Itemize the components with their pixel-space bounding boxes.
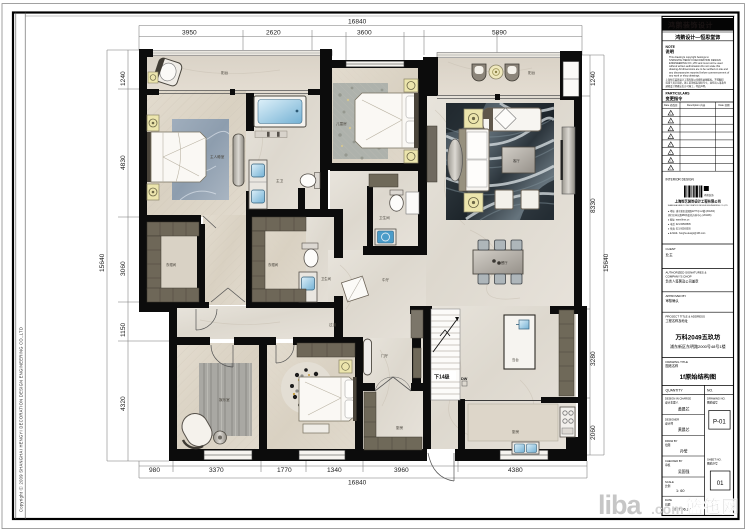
svg-text:娱乐室: 娱乐室 [219,397,230,402]
svg-text:比例: 比例 [665,484,671,488]
svg-text:门厅: 门厅 [381,353,389,358]
svg-text:1240: 1240 [590,71,597,86]
svg-text:4320: 4320 [120,396,127,411]
svg-text:QUANTITY: QUANTITY [666,388,684,392]
svg-text:DW: DW [461,377,468,381]
svg-text:主人睡室: 主人睡室 [210,154,225,159]
svg-text:SHANGHAI HENGYI DECORATION DES: SHANGHAI HENGYI DECORATION DESIGN ENGINE… [668,204,729,207]
svg-text:980: 980 [149,467,160,474]
svg-text:下14级: 下14级 [434,374,450,381]
svg-text:3370: 3370 [209,467,224,474]
svg-text:岛台: 岛台 [512,357,519,362]
svg-text:16840: 16840 [348,19,367,26]
svg-text:3280: 3280 [590,351,597,366]
svg-text:图纸名称: 图纸名称 [666,363,680,368]
svg-text:1770: 1770 [277,467,292,474]
svg-text:负责人签署及公司盖章: 负责人签署及公司盖章 [666,278,700,283]
svg-text:2620: 2620 [266,30,281,37]
svg-text:15640: 15640 [603,253,610,272]
svg-text:1f原始结构图: 1f原始结构图 [680,373,716,381]
svg-text:SCALE: SCALE [665,480,674,484]
svg-text:Copyright Ⓒ 2009 SHANGHAI HE: Copyright Ⓒ 2009 SHANGHAI HENGYI DECORAT… [18,327,24,512]
svg-text:1340: 1340 [327,467,342,474]
svg-text:厨房: 厨房 [512,429,520,434]
svg-text:1240: 1240 [120,71,127,86]
svg-text:any work or shop drawings.: any work or shop drawings. [669,73,700,77]
svg-text:DESIGNER: DESIGNER [665,417,679,421]
svg-text:鸿鹅装饰: 鸿鹅装饰 [704,193,715,197]
svg-text:图纸编号: 图纸编号 [707,401,718,405]
svg-text:15640: 15640 [99,253,106,272]
svg-text:CHECKED BY: CHECKED BY [665,459,683,463]
svg-text:1150: 1150 [120,322,127,337]
svg-text:2060: 2060 [590,425,597,440]
svg-text:审核确认: 审核确认 [666,298,680,303]
svg-text:厨房: 厨房 [396,425,404,430]
svg-text:上海恒艺装饰设计工程有限公司: 上海恒艺装饰设计工程有限公司 [675,198,721,203]
svg-text:DRAWING NO.: DRAWING NO. [707,396,726,400]
svg-text:COMPANY'S CHOP: COMPANY'S CHOP [666,274,692,278]
svg-text:变更指令: 变更指令 [666,95,684,102]
svg-text:卫生间: 卫生间 [321,276,331,281]
svg-text:黄晨芯: 黄晨芯 [678,406,690,411]
svg-text:01: 01 [717,481,724,487]
svg-text:审核: 审核 [665,463,671,467]
svg-text:主卫: 主卫 [276,178,284,183]
svg-text:衣帽间: 衣帽间 [166,262,177,267]
svg-text:说明: 说明 [666,48,674,55]
svg-text:餐厅: 餐厅 [501,260,508,265]
svg-text:浦东新区东明路2000号48号1楼: 浦东新区东明路2000号48号1楼 [670,343,726,349]
svg-text:鸿鹅装饰设计: 鸿鹅装饰设计 [668,21,713,30]
svg-text:APPROVED BY: APPROVED BY [666,294,687,298]
svg-text:绘图: 绘图 [665,443,671,447]
svg-text:鸿鹅设计—恒思堂饰: 鸿鹅设计—恒思堂饰 [675,34,720,41]
svg-text:8330: 8330 [590,198,597,213]
svg-text:孙莹: 孙莹 [680,448,688,453]
svg-text:NO.: NO. [707,388,713,392]
svg-text:客厅: 客厅 [513,158,520,163]
svg-text:.com: .com [651,501,684,517]
svg-text:PROJECT TITLE & ADDRESS: PROJECT TITLE & ADDRESS [666,314,705,318]
svg-text:衣帽间: 衣帽间 [268,262,279,267]
svg-text:3600: 3600 [357,30,372,37]
svg-text:1: 60: 1: 60 [676,489,684,493]
svg-text:图纸序号: 图纸序号 [707,462,718,466]
svg-text:Description 内容: Description 内容 [687,103,706,107]
svg-text:儿童房: 儿童房 [336,121,347,126]
svg-text:Date 日期: Date 日期 [719,103,730,107]
svg-text:4830: 4830 [120,155,127,170]
svg-text:Date 修改日: Date 修改日 [664,103,678,107]
svg-text:DRAW BY: DRAW BY [665,439,678,443]
svg-text:DRAWING TITLE: DRAWING TITLE [666,360,689,364]
svg-text:● E-MAIL: honghu-design@163.co: ● E-MAIL: honghu-design@163.com [668,232,705,235]
svg-text:设计主理人: 设计主理人 [665,401,679,405]
svg-text:16840: 16840 [348,480,367,487]
svg-text:吴国强: 吴国强 [678,469,690,474]
svg-text:过道: 过道 [329,322,337,327]
svg-text:3960: 3960 [394,467,409,474]
svg-text:PARTICULARS: PARTICULARS [666,92,691,96]
svg-text:CLIENT: CLIENT [666,247,677,251]
svg-text:阳台: 阳台 [528,70,536,75]
svg-text:3060: 3060 [120,261,127,276]
svg-text:卫生间: 卫生间 [379,215,390,220]
svg-text:业主: 业主 [666,252,674,257]
svg-text:黄晨芯: 黄晨芯 [678,427,690,432]
svg-text:5890: 5890 [492,30,507,37]
svg-text:SHEET NO.: SHEET NO. [707,457,722,461]
svg-text:4380: 4380 [508,467,523,474]
svg-text:篮竾网: 篮竾网 [685,497,739,517]
svg-text:工程名称及地址: 工程名称及地址 [666,318,689,323]
svg-text:3950: 3950 [182,30,197,37]
svg-text:DESIGN IN CHARGE: DESIGN IN CHARGE [665,396,691,400]
svg-text:设计师: 设计师 [665,422,673,426]
svg-text:P-01: P-01 [713,420,726,426]
svg-text:万科2049五玖坊: 万科2049五玖坊 [674,334,721,342]
svg-text:阳台: 阳台 [221,70,229,75]
svg-text:中厅: 中厅 [382,277,390,282]
svg-text:INTERIOR DESIGN: INTERIOR DESIGN [666,177,695,181]
svg-text:liba: liba [598,490,642,520]
